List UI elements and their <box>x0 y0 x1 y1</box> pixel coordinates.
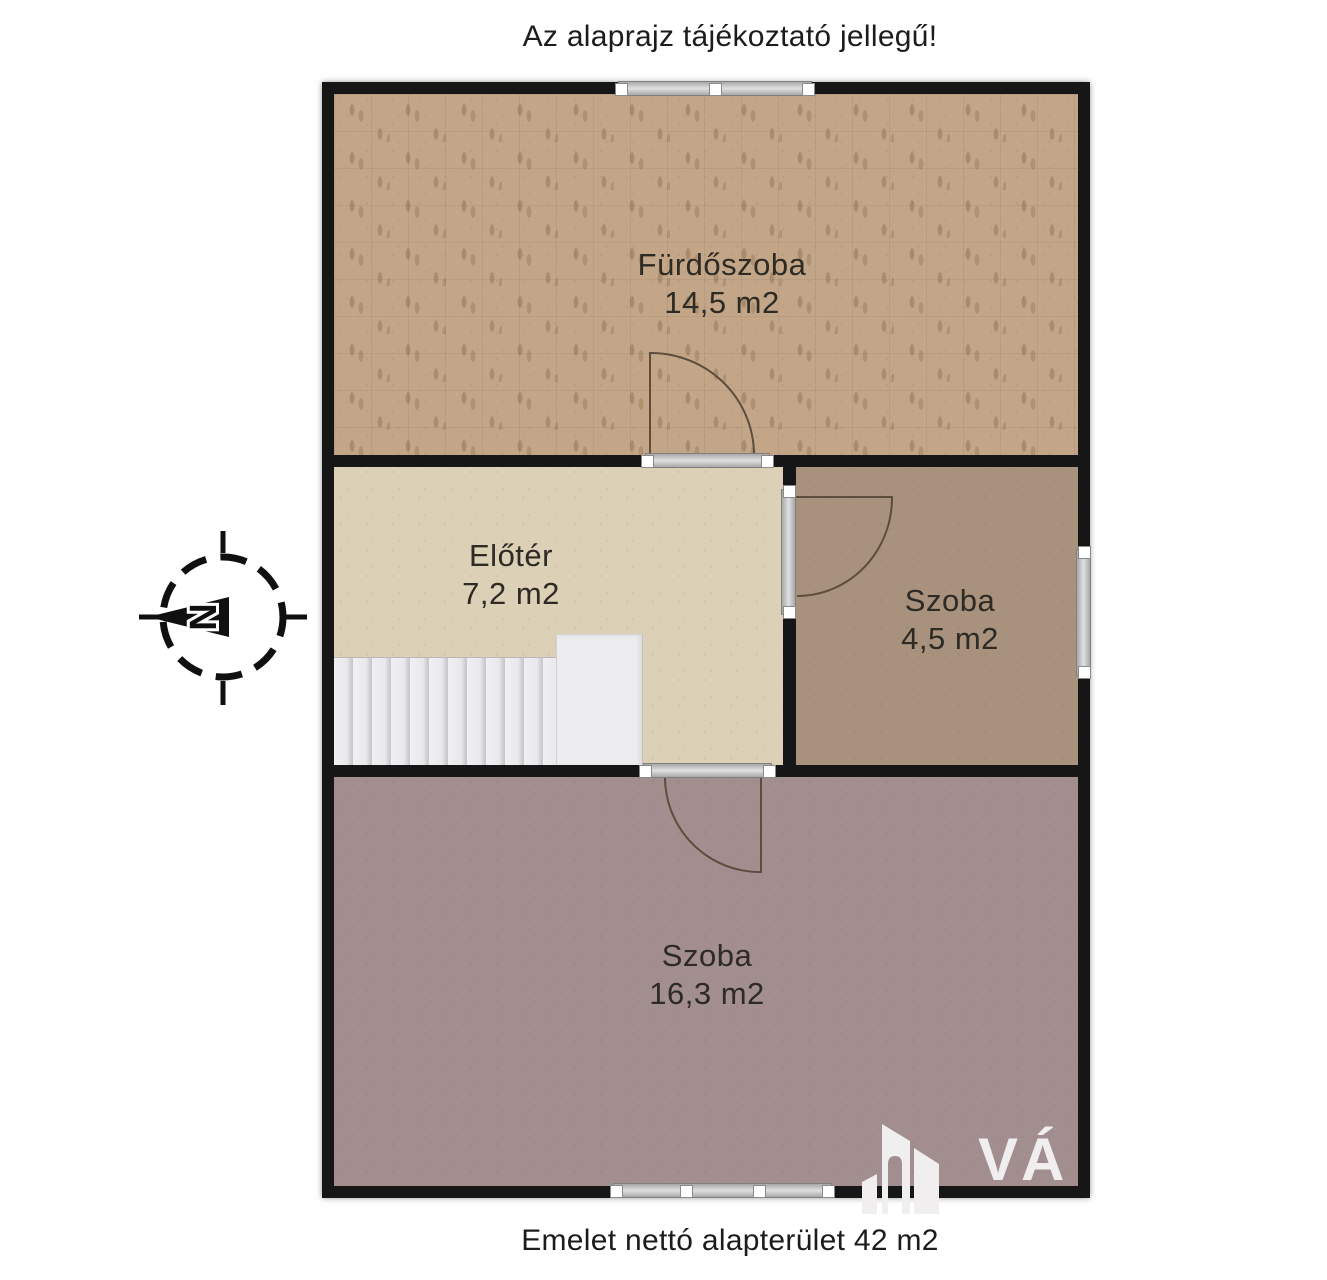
floor-plan-page: Az alaprajz tájékoztató jellegű! N <box>0 0 1327 1280</box>
door-small-room-frame <box>781 489 796 615</box>
room-label-bathroom: Fürdőszoba 14,5 m2 <box>638 246 807 322</box>
building-icon <box>860 1118 942 1214</box>
room-name: Fürdőszoba <box>638 246 807 284</box>
room-area: 14,5 m2 <box>638 284 807 322</box>
north-letter: N <box>183 603 225 630</box>
footer-caption: Emelet nettó alapterület 42 m2 <box>322 1224 1138 1258</box>
door-large-room-leaf <box>760 775 762 873</box>
stair-landing <box>556 634 643 767</box>
room-name: Szoba <box>649 937 765 975</box>
compass-icon: N <box>136 528 310 708</box>
room-area: 16,3 m2 <box>649 975 765 1013</box>
window-bottom <box>613 1183 832 1198</box>
window-right <box>1076 549 1091 676</box>
room-area: 4,5 m2 <box>901 620 999 658</box>
room-name: Szoba <box>901 582 999 620</box>
window-top <box>618 81 812 96</box>
room-label-large-room: Szoba 16,3 m2 <box>649 937 765 1013</box>
door-large-room-frame <box>643 763 772 778</box>
door-bathroom-frame <box>645 453 770 468</box>
room-name: Előtér <box>462 537 560 575</box>
disclaimer-title: Az alaprajz tájékoztató jellegű! <box>322 20 1138 54</box>
stairs <box>334 657 556 766</box>
room-label-small-room: Szoba 4,5 m2 <box>901 582 999 658</box>
watermark-text: VÁ <box>978 1130 1067 1190</box>
room-area: 7,2 m2 <box>462 575 560 613</box>
room-label-hall: Előtér 7,2 m2 <box>462 537 560 613</box>
